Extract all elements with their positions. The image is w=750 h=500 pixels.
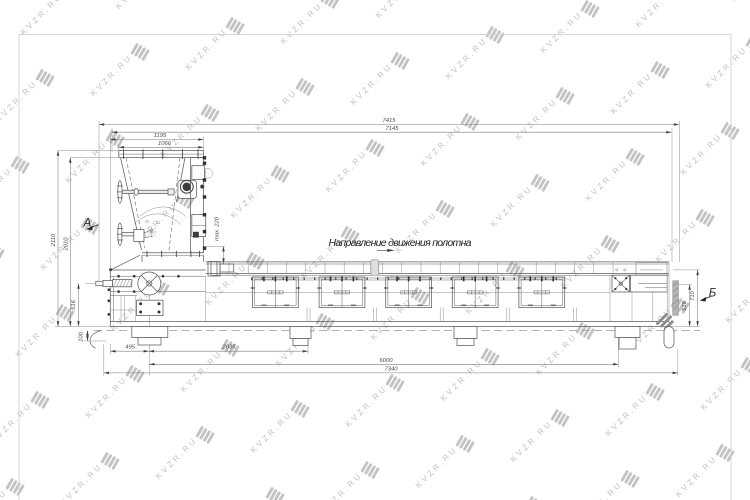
svg-text:7415: 7415 bbox=[382, 118, 396, 124]
svg-text:100: 100 bbox=[79, 331, 85, 341]
svg-text:495: 495 bbox=[125, 345, 136, 351]
svg-text:1066: 1066 bbox=[158, 141, 172, 147]
svg-text:7340: 7340 bbox=[384, 367, 398, 373]
svg-text:7145: 7145 bbox=[385, 126, 399, 132]
svg-text:6000: 6000 bbox=[379, 358, 393, 364]
svg-text:516: 516 bbox=[71, 299, 77, 309]
svg-text:2035: 2035 bbox=[221, 345, 236, 351]
svg-text:516: 516 bbox=[682, 300, 688, 310]
svg-text:Б: Б bbox=[709, 288, 717, 300]
svg-text:max. 220: max. 220 bbox=[214, 216, 220, 241]
svg-text:1195: 1195 bbox=[154, 133, 167, 139]
svg-text:2010: 2010 bbox=[64, 237, 70, 252]
svg-text:2110: 2110 bbox=[51, 233, 57, 247]
svg-text:710: 710 bbox=[690, 290, 696, 300]
svg-text:Направление движения полотна: Направление движения полотна bbox=[329, 237, 472, 249]
